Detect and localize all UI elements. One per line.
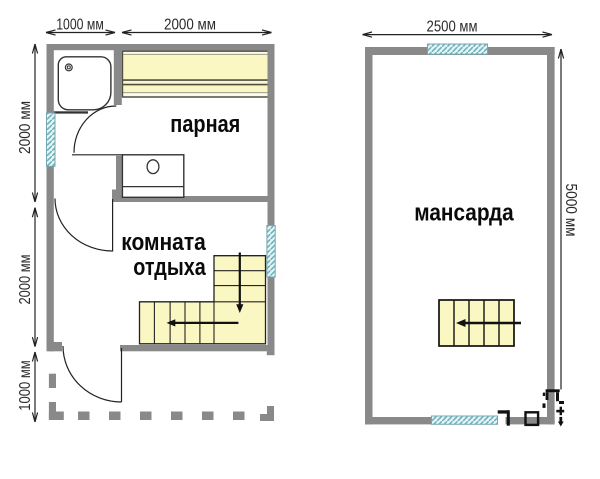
svg-text:2500 мм: 2500 мм bbox=[427, 18, 478, 35]
svg-text:1000 мм: 1000 мм bbox=[17, 360, 34, 411]
svg-text:2000 мм: 2000 мм bbox=[17, 101, 34, 154]
svg-text:отдыха: отдыха bbox=[133, 254, 206, 281]
svg-text:мансарда: мансарда bbox=[414, 199, 514, 226]
svg-text:5000 мм: 5000 мм bbox=[562, 184, 579, 237]
svg-text:2000 мм: 2000 мм bbox=[164, 16, 216, 33]
svg-text:1000 мм: 1000 мм bbox=[56, 16, 104, 33]
svg-text:парная: парная bbox=[170, 111, 240, 138]
svg-text:комната: комната bbox=[121, 229, 206, 256]
svg-text:2000 мм: 2000 мм bbox=[17, 255, 34, 305]
